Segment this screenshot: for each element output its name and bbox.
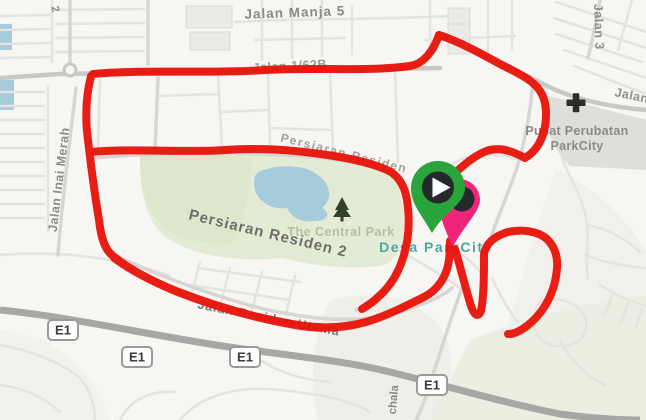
e1-shield: E1 <box>230 347 260 367</box>
water-edge-1 <box>0 24 12 50</box>
e1-shield: E1 <box>122 347 152 367</box>
label-desa-parkcity: Desa ParkCity <box>379 239 493 255</box>
roundabout <box>64 64 76 76</box>
label-the-central-park: The Central Park <box>287 225 394 239</box>
e1-shield: E1 <box>48 320 78 340</box>
e1-shield-label: E1 <box>55 323 71 338</box>
e1-shield-label: E1 <box>424 378 440 393</box>
e1-shield: E1 <box>417 375 447 395</box>
map-canvas[interactable]: E1 E1 E1 E1 Jalan Manja 5 Jalan 1/62B Ja… <box>0 0 646 420</box>
label-jalan-3: Jalan 3 <box>591 4 607 50</box>
e1-shield-label: E1 <box>237 350 253 365</box>
label-pusat-perubatan-2: ParkCity <box>550 139 603 153</box>
e1-shield-label: E1 <box>129 350 145 365</box>
map-svg: E1 E1 E1 E1 Jalan Manja 5 Jalan 1/62B Ja… <box>0 0 646 420</box>
